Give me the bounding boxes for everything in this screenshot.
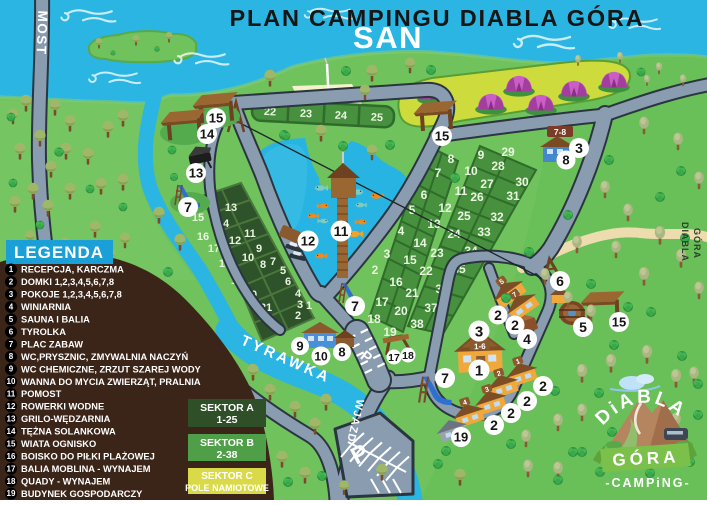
svg-text:8: 8 (562, 153, 569, 168)
svg-text:3: 3 (384, 247, 391, 261)
svg-text:10: 10 (242, 252, 254, 264)
svg-text:30: 30 (515, 175, 529, 189)
svg-text:17: 17 (7, 464, 16, 473)
svg-text:13: 13 (189, 166, 203, 181)
svg-text:23: 23 (430, 246, 444, 260)
svg-text:2: 2 (295, 310, 301, 322)
svg-text:10: 10 (314, 349, 328, 363)
svg-text:3: 3 (575, 140, 583, 156)
svg-text:4: 4 (523, 331, 531, 347)
svg-text:10: 10 (464, 164, 478, 178)
svg-text:16: 16 (197, 231, 209, 243)
svg-text:7: 7 (270, 256, 276, 268)
svg-text:WC CHEMICZNE, ZRZUT SZAREJ WOD: WC CHEMICZNE, ZRZUT SZAREJ WODY (21, 364, 202, 374)
svg-text:SEKTOR B: SEKTOR B (200, 437, 254, 449)
svg-text:SAUNA I BALIA: SAUNA I BALIA (21, 315, 90, 325)
svg-text:12: 12 (438, 201, 452, 215)
svg-text:9: 9 (296, 339, 303, 354)
svg-text:17: 17 (388, 352, 400, 364)
svg-text:18: 18 (402, 350, 414, 362)
svg-text:9: 9 (478, 148, 485, 162)
svg-text:21: 21 (405, 286, 419, 300)
svg-text:7: 7 (435, 166, 442, 180)
svg-text:16: 16 (7, 452, 16, 461)
svg-text:PLAC ZABAW: PLAC ZABAW (21, 339, 83, 349)
svg-text:GÓRA: GÓRA (612, 447, 680, 469)
svg-text:SEKTOR A: SEKTOR A (200, 402, 254, 414)
svg-text:GÓRA: GÓRA (692, 228, 703, 259)
svg-text:27: 27 (480, 177, 494, 191)
svg-text:13: 13 (7, 415, 16, 424)
svg-text:15: 15 (403, 253, 417, 267)
svg-text:5: 5 (579, 319, 587, 335)
svg-text:1-25: 1-25 (216, 414, 237, 426)
svg-text:16: 16 (389, 275, 403, 289)
svg-text:32: 32 (490, 210, 504, 224)
svg-text:13: 13 (427, 217, 441, 231)
svg-text:17: 17 (375, 295, 389, 309)
svg-text:1: 1 (475, 362, 483, 379)
svg-text:7: 7 (351, 298, 359, 314)
svg-text:2: 2 (372, 263, 379, 277)
svg-text:3: 3 (9, 290, 14, 299)
svg-text:8: 8 (9, 352, 14, 361)
svg-text:12: 12 (7, 402, 16, 411)
svg-text:24: 24 (447, 227, 461, 241)
svg-text:14: 14 (200, 127, 215, 142)
svg-text:6: 6 (9, 327, 14, 336)
svg-text:1: 1 (306, 300, 312, 312)
svg-text:PLAN CAMPINGU DIABLA GÓRA: PLAN CAMPINGU DIABLA GÓRA (230, 4, 645, 31)
svg-text:25: 25 (457, 209, 471, 223)
svg-text:33: 33 (477, 225, 491, 239)
svg-text:19: 19 (454, 430, 468, 445)
svg-text:22: 22 (419, 264, 433, 278)
svg-text:DOMKI 1,2,3,4,5,6,7,8: DOMKI 1,2,3,4,5,6,7,8 (21, 277, 114, 287)
svg-text:26: 26 (470, 190, 484, 204)
svg-text:-CAMPiNG-: -CAMPiNG- (605, 476, 690, 490)
svg-text:12: 12 (301, 234, 315, 249)
svg-text:TĘŻNA SOLANKOWA: TĘŻNA SOLANKOWA (21, 427, 116, 437)
svg-text:POLE NAMIOTOWE: POLE NAMIOTOWE (185, 483, 269, 493)
svg-text:19: 19 (7, 489, 16, 498)
svg-text:2: 2 (523, 393, 531, 409)
svg-text:WIATA OGNISKO: WIATA OGNISKO (21, 439, 96, 449)
svg-text:6: 6 (421, 188, 428, 202)
svg-text:2-38: 2-38 (216, 449, 237, 461)
svg-text:18: 18 (367, 312, 381, 326)
svg-text:POMOST: POMOST (21, 389, 62, 399)
svg-text:1-6: 1-6 (474, 342, 486, 351)
svg-text:DIABLA: DIABLA (680, 222, 690, 262)
svg-text:POKOJE 1,2,3,4,5,6,7,8: POKOJE 1,2,3,4,5,6,7,8 (21, 290, 122, 300)
svg-text:7: 7 (441, 370, 449, 386)
svg-text:RECEPCJA, KARCZMA: RECEPCJA, KARCZMA (21, 265, 124, 275)
svg-text:31: 31 (506, 189, 520, 203)
svg-text:1: 1 (9, 265, 14, 274)
svg-text:BUDYNEK GOSPODARCZY: BUDYNEK GOSPODARCZY (21, 489, 143, 499)
svg-text:QUADY - WYNAJEM: QUADY - WYNAJEM (21, 476, 110, 486)
svg-text:7: 7 (184, 199, 192, 215)
svg-text:SEKTOR C: SEKTOR C (201, 471, 253, 482)
svg-text:18: 18 (7, 477, 16, 486)
svg-text:5: 5 (9, 315, 14, 324)
svg-text:GRILO-WĘDZARNIA: GRILO-WĘDZARNIA (21, 414, 111, 424)
svg-text:15: 15 (209, 111, 223, 126)
svg-text:7: 7 (9, 340, 14, 349)
svg-text:23: 23 (300, 108, 313, 121)
svg-text:SAN: SAN (353, 20, 423, 55)
svg-text:15: 15 (435, 129, 449, 144)
svg-text:29: 29 (501, 145, 515, 159)
svg-text:14: 14 (413, 236, 427, 250)
svg-text:6: 6 (556, 273, 564, 289)
svg-text:13: 13 (225, 202, 237, 214)
svg-text:2: 2 (494, 307, 502, 323)
svg-text:WINIARNIA: WINIARNIA (21, 302, 71, 312)
svg-text:38: 38 (410, 317, 424, 331)
svg-text:11: 11 (244, 228, 256, 240)
svg-text:15: 15 (612, 315, 626, 330)
svg-text:12: 12 (229, 235, 241, 247)
svg-text:3: 3 (475, 323, 483, 340)
svg-text:2: 2 (507, 405, 515, 421)
svg-text:14: 14 (7, 427, 16, 436)
svg-text:BOISKO DO PIŁKI PLAŻOWEJ: BOISKO DO PIŁKI PLAŻOWEJ (21, 451, 155, 461)
svg-text:MOST: MOST (34, 10, 51, 55)
svg-text:7-8: 7-8 (554, 127, 567, 137)
svg-text:20: 20 (394, 304, 408, 318)
svg-text:2: 2 (9, 278, 14, 287)
svg-text:9: 9 (9, 365, 14, 374)
svg-text:WC,PRYSZNIC, ZMYWALNIA NACZYŃ: WC,PRYSZNIC, ZMYWALNIA NACZYŃ (21, 352, 188, 362)
svg-text:6: 6 (285, 276, 291, 288)
svg-text:2: 2 (539, 378, 547, 394)
svg-text:28: 28 (491, 159, 505, 173)
svg-text:BALIA MOBLINA - WYNAJEM: BALIA MOBLINA - WYNAJEM (21, 464, 151, 474)
svg-text:ROWERKI WODNE: ROWERKI WODNE (21, 402, 104, 412)
svg-text:4: 4 (398, 224, 405, 238)
svg-text:24: 24 (334, 110, 348, 123)
svg-text:TYROLKA: TYROLKA (21, 327, 66, 337)
svg-text:11: 11 (334, 223, 349, 239)
svg-text:25: 25 (370, 112, 383, 125)
svg-text:15: 15 (7, 439, 16, 448)
svg-text:11: 11 (7, 390, 16, 399)
svg-text:LEGENDA: LEGENDA (14, 243, 104, 262)
svg-text:8: 8 (338, 345, 345, 360)
svg-text:9: 9 (256, 243, 262, 255)
svg-text:WANNA DO MYCIA ZWIERZĄT, PRALN: WANNA DO MYCIA ZWIERZĄT, PRALNIA (21, 377, 201, 387)
svg-text:2: 2 (511, 317, 519, 333)
svg-text:8: 8 (260, 259, 266, 271)
svg-text:4: 4 (9, 303, 14, 312)
svg-text:10: 10 (7, 377, 16, 386)
svg-text:2: 2 (490, 417, 498, 433)
svg-text:11: 11 (455, 184, 468, 198)
svg-text:8: 8 (448, 152, 455, 166)
